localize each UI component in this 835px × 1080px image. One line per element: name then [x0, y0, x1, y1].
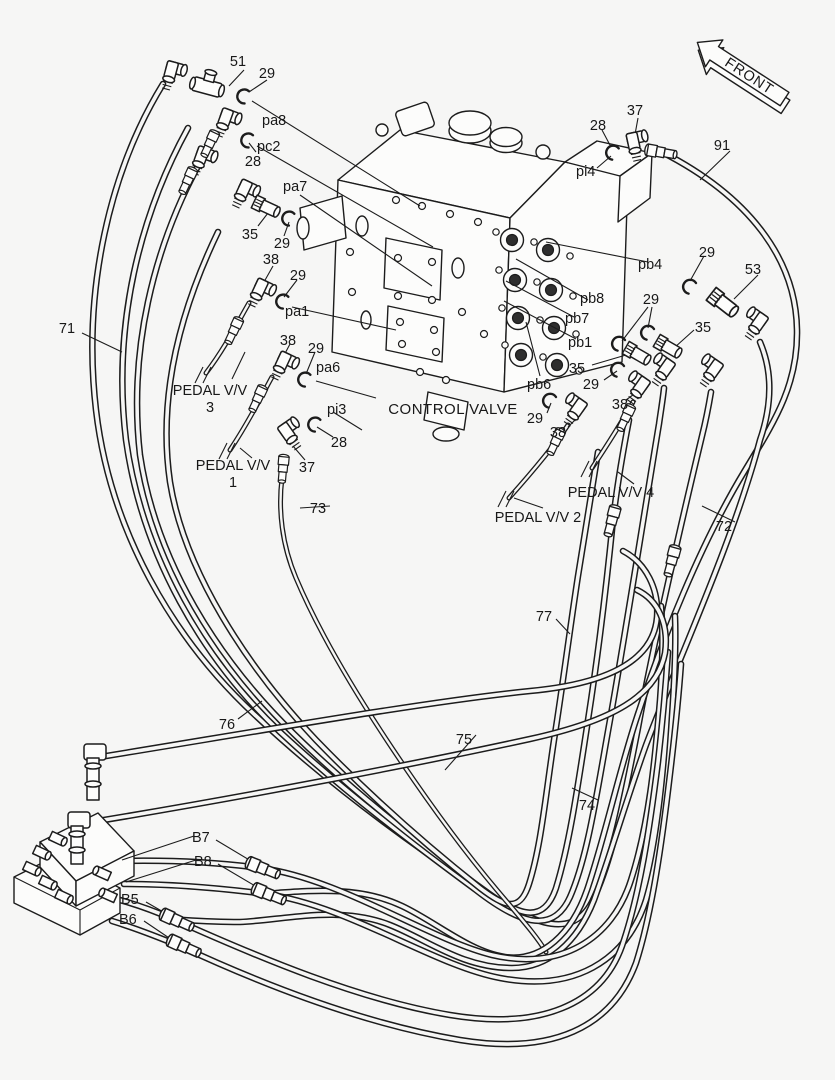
callout-38: 38: [612, 397, 628, 413]
callout-29: 29: [643, 292, 659, 308]
callout-29: 29: [259, 66, 275, 82]
callout-29: 29: [527, 411, 543, 427]
callout-29: 29: [308, 341, 324, 357]
callout-28: 28: [245, 154, 261, 170]
port-label-pb7: pb7: [565, 311, 589, 327]
hose-coupling-b8: [250, 882, 288, 908]
callout-38: 38: [550, 425, 566, 441]
oring-29: [280, 209, 295, 226]
elbow-fitting: [736, 306, 770, 342]
port-label-b7: B7: [192, 830, 210, 846]
callout-73: 73: [310, 501, 326, 517]
port-label-b6: B6: [119, 912, 137, 928]
oring-29: [540, 391, 556, 408]
callout-76: 76: [219, 717, 235, 733]
callout-53: 53: [745, 262, 761, 278]
hose-coupling-b7: [244, 856, 282, 882]
oring-29: [680, 277, 696, 294]
hose-coupling: [247, 383, 269, 413]
pedal-vv4-label: PEDAL V/V 4: [568, 485, 655, 501]
port-label-b5: B5: [121, 892, 139, 908]
callout-28: 28: [590, 118, 606, 134]
adapter-53: [706, 287, 741, 319]
callout-29: 29: [583, 377, 599, 393]
hose-coupling: [223, 315, 245, 345]
tee-fitting-51: [188, 66, 228, 99]
callout-77: 77: [536, 609, 552, 625]
port-label-b8: B8: [194, 854, 212, 870]
pedal-vv1-label-line2: 1: [229, 475, 237, 491]
port-label-pa7: pa7: [283, 179, 307, 195]
callout-35: 35: [695, 320, 711, 336]
callout-71: 71: [59, 321, 75, 337]
port-label-pi3: pi3: [327, 402, 346, 418]
port-label-pa1: pa1: [285, 304, 309, 320]
callout-51: 51: [230, 54, 246, 70]
callout-35: 35: [242, 227, 258, 243]
oring-29: [235, 88, 249, 104]
port-label-pa6: pa6: [316, 360, 340, 376]
callout-74: 74: [579, 798, 595, 814]
hose-coupling-b6: [165, 933, 203, 960]
callout-35: 35: [569, 361, 585, 377]
pilot-manifold: [14, 744, 134, 935]
callout-37: 37: [299, 460, 315, 476]
oring-28: [306, 415, 321, 432]
port-label-pc2: pc2: [257, 139, 280, 155]
callout-91: 91: [714, 138, 730, 154]
control-valve-label: CONTROL VALVE: [388, 401, 518, 418]
hose-coupling: [662, 544, 682, 578]
front-arrow: FRONT: [685, 29, 797, 120]
elbow-fitting: [691, 353, 725, 389]
pedal-vv1-label-line1: PEDAL V/V: [196, 458, 271, 474]
elbow-fitting-pi3: [276, 416, 310, 452]
pedal-vv2-label: PEDAL V/V 2: [495, 510, 582, 526]
callout-38: 38: [280, 333, 296, 349]
port-label-pa8: pa8: [262, 113, 286, 129]
pedal-vv3-label-line2: 3: [206, 400, 214, 416]
hose-coupling: [602, 504, 622, 538]
elbow-fitting: [160, 60, 188, 93]
oring-29: [296, 370, 311, 387]
oring-29: [638, 323, 654, 340]
callout-29: 29: [290, 268, 306, 284]
diagram: FRONT 51 29 28 35 29 38 29 38 29 28 37 7…: [0, 0, 835, 1080]
pedal-vv3-label-line1: PEDAL V/V: [173, 383, 248, 399]
adapter-35: [622, 341, 653, 367]
elbow-fitting-pa1: [246, 277, 278, 312]
callout-38: 38: [263, 252, 279, 268]
port-label-pb8: pb8: [580, 291, 604, 307]
callout-72: 72: [716, 519, 732, 535]
port-label-pb1: pb1: [568, 335, 592, 351]
adapter-35: [251, 195, 282, 219]
port-label-pb6: pb6: [527, 377, 551, 393]
elbow-fitting-pa6: [269, 350, 301, 385]
callout-29: 29: [699, 245, 715, 261]
port-label-pb4: pb4: [638, 257, 662, 273]
diagram-canvas: FRONT 51 29 28 35 29 38 29 38 29 28 37 7…: [0, 0, 835, 1080]
callout-37: 37: [627, 103, 643, 119]
callout-28: 28: [331, 435, 347, 451]
elbow-fitting-pb6: [555, 392, 589, 428]
callout-75: 75: [456, 732, 472, 748]
port-label-pi4: pi4: [576, 164, 595, 180]
hose-coupling: [276, 454, 289, 484]
callout-29: 29: [274, 236, 290, 252]
